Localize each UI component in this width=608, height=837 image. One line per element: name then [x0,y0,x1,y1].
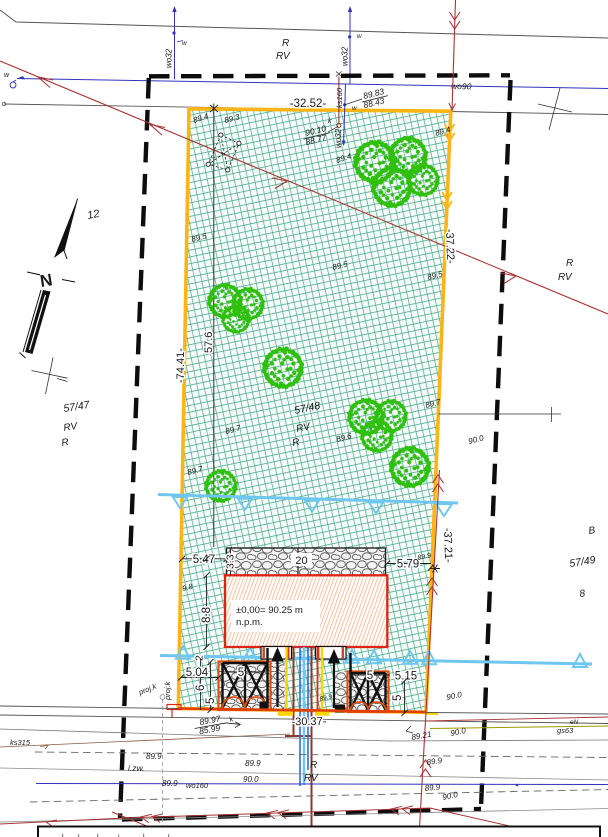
svg-text:RV: RV [558,272,573,283]
svg-text:57.6: 57.6 [203,332,215,353]
svg-text:5.04: 5.04 [186,667,209,679]
svg-text:89.9: 89.9 [245,759,261,768]
svg-text:i.zw.: i.zw. [128,763,145,773]
svg-text:12: 12 [86,208,100,222]
svg-text:ks315: ks315 [10,738,31,747]
svg-text:gs63: gs63 [557,726,574,735]
svg-text:3.3: 3.3 [225,554,237,569]
svg-text:eN: eN [570,719,579,726]
svg-text:5: 5 [238,667,244,679]
svg-text:8.8: 8.8 [201,607,213,623]
svg-text:5.47: 5.47 [193,554,215,566]
svg-text:20: 20 [295,555,307,567]
svg-text:wo90: wo90 [451,81,472,91]
svg-text:5: 5 [392,695,404,701]
svg-text:5: 5 [367,670,373,682]
svg-text:R: R [566,258,573,269]
svg-text:RV: RV [304,773,319,784]
svg-text:wo160: wo160 [186,781,209,790]
svg-text:ks160: ks160 [335,87,344,108]
svg-text:RV: RV [276,51,291,62]
svg-text:-32.52-: -32.52- [290,98,327,110]
svg-text:-37.21-: -37.21- [441,528,454,564]
svg-text:5.15: 5.15 [395,671,417,683]
svg-text:89.9: 89.9 [424,782,441,793]
svg-text:R: R [310,760,317,771]
svg-text:R: R [282,38,289,49]
svg-text:wo32: wo32 [334,128,343,148]
svg-text:2: 2 [194,655,206,661]
svg-text:wo32: wo32 [341,46,350,66]
svg-text:5: 5 [205,698,217,704]
svg-text:k: k [328,118,332,125]
svg-text:-74.41-: -74.41- [175,348,187,383]
svg-text:-37.22-: -37.22- [443,229,456,265]
svg-text:89.9: 89.9 [146,752,162,761]
svg-text:±0,00= 90.25 m: ±0,00= 90.25 m [236,605,303,616]
svg-text:n.p.m.: n.p.m. [236,617,263,628]
svg-text:5.79: 5.79 [397,559,419,571]
svg-text:6: 6 [195,685,207,691]
svg-text:proj.k: proj.k [163,680,172,701]
svg-text:wo32: wo32 [165,48,174,68]
svg-text:-30.37-: -30.37- [291,716,326,729]
svg-text:89.9: 89.9 [162,779,178,788]
svg-text:90.0: 90.0 [243,775,259,784]
